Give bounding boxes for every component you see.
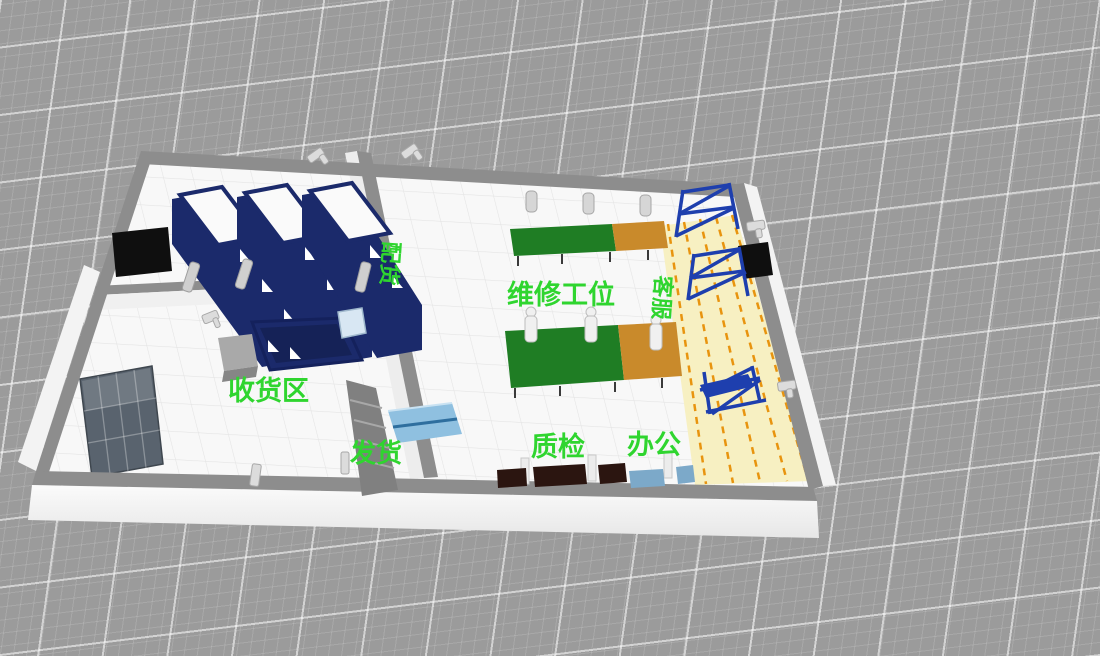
3d-scene-viewport[interactable]: 配货 收货区 发货 维修工位 客服 质检 办公 xyxy=(0,0,1100,656)
area-label-weixiu: 维修工位 xyxy=(507,279,615,311)
receiving-gray-desk[interactable] xyxy=(218,334,258,382)
camera-top-wall-2 xyxy=(400,143,424,167)
area-label-fahuo: 发货 xyxy=(349,438,402,469)
area-label-shouhuoqu: 收货区 xyxy=(228,375,309,407)
receiving-sloped-panel[interactable] xyxy=(338,308,366,338)
area-label-peihuo: 配货 xyxy=(375,241,404,287)
area-label-bangong: 办公 xyxy=(627,430,681,461)
area-label-kefu: 客服 xyxy=(647,275,676,322)
post-bottom-wall-1 xyxy=(341,452,349,474)
glass-window[interactable] xyxy=(80,366,163,477)
dock-panel-left[interactable] xyxy=(112,227,172,277)
building-layout: 配货 收货区 发货 维修工位 客服 质检 办公 xyxy=(0,0,1100,656)
area-label-zhijian: 质检 xyxy=(531,431,585,463)
